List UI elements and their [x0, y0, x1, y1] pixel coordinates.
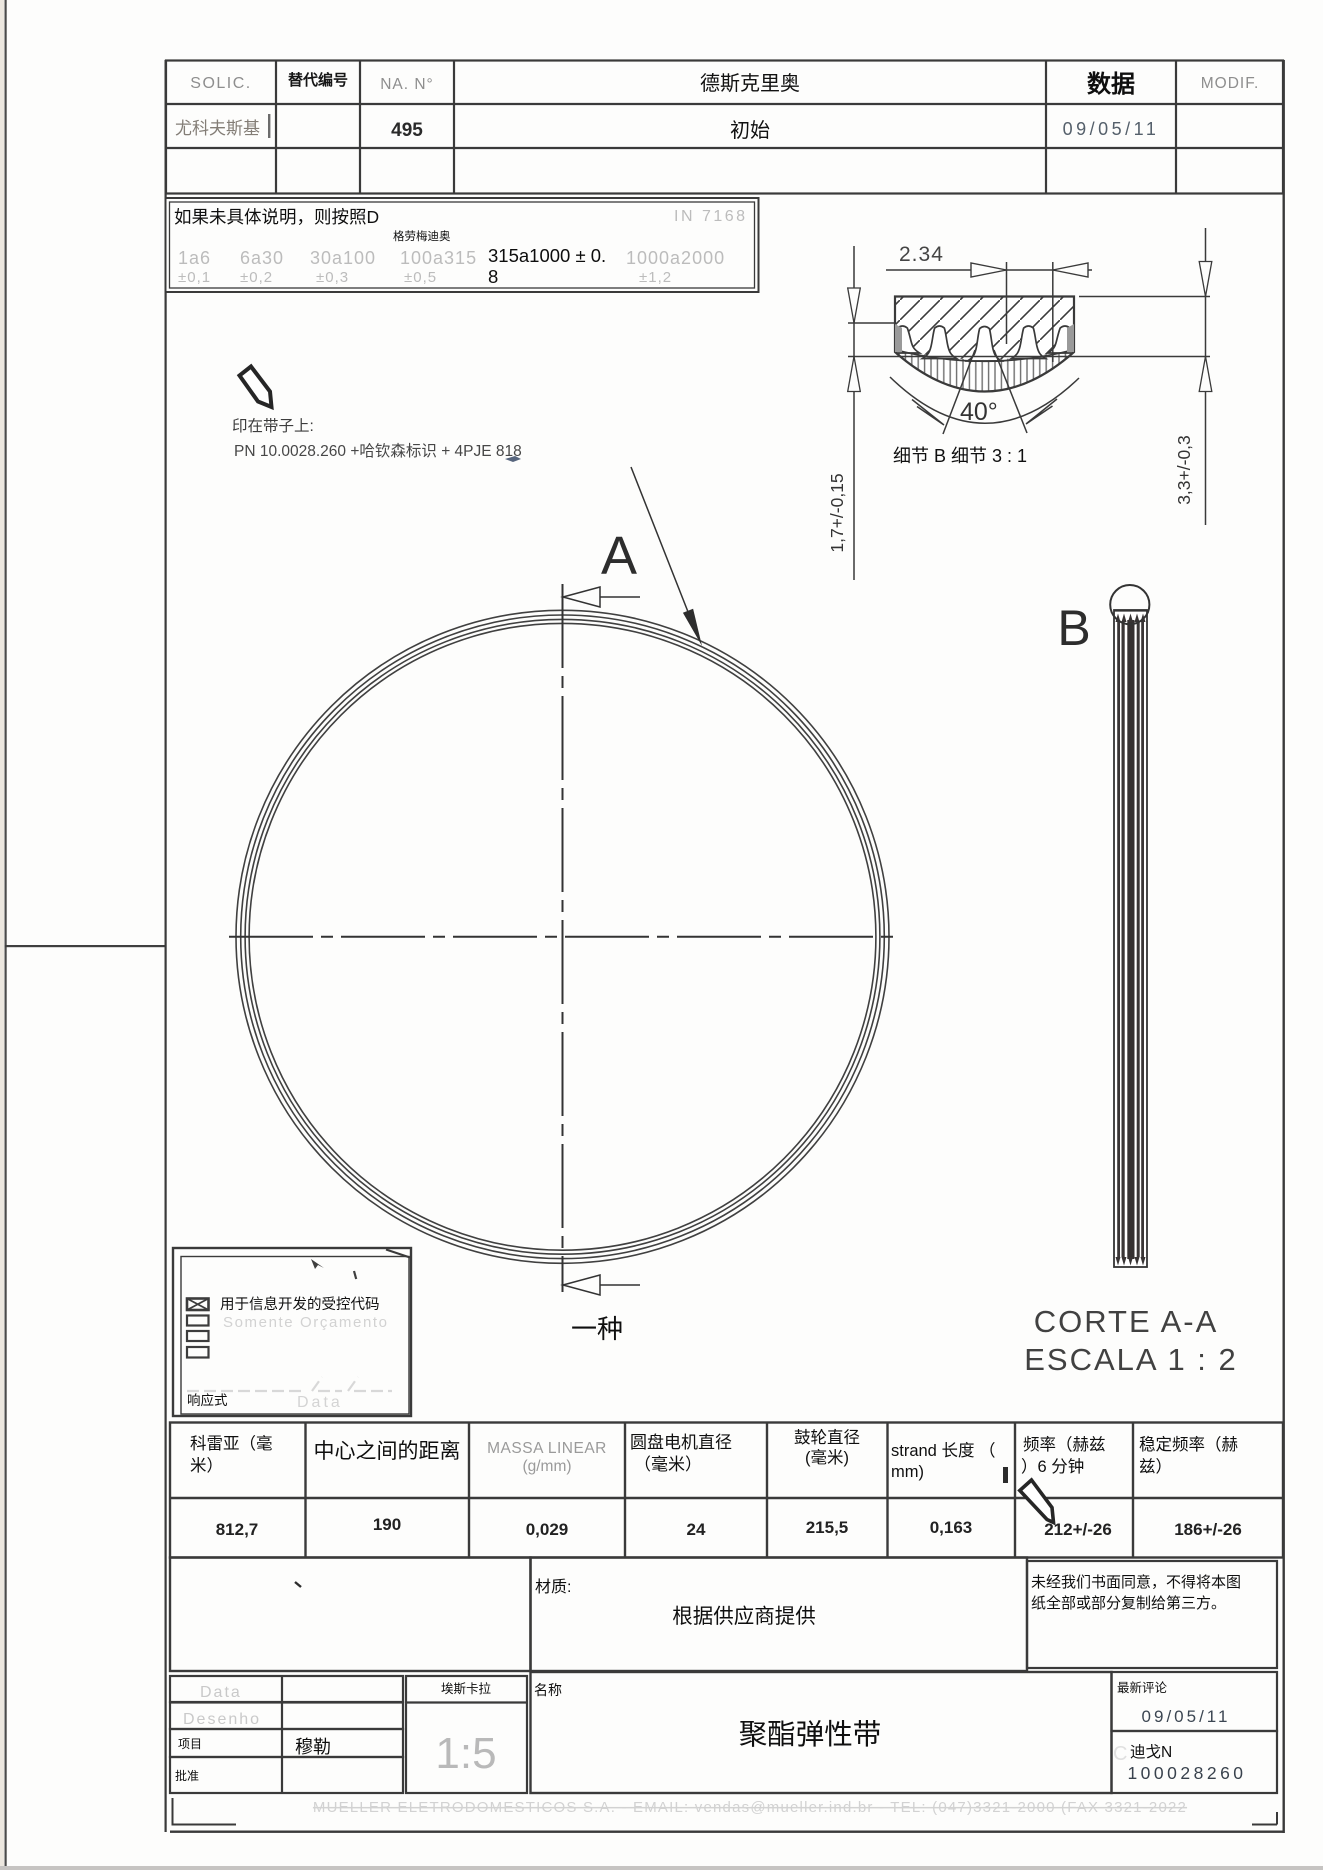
svg-text:3,3+/-0,3: 3,3+/-0,3	[1174, 435, 1194, 505]
svg-text:0,163: 0,163	[930, 1518, 973, 1537]
svg-text:09/05/11: 09/05/11	[1063, 119, 1160, 139]
svg-text:稳定频率（赫: 稳定频率（赫	[1139, 1435, 1238, 1454]
svg-text:812,7: 812,7	[216, 1520, 259, 1539]
svg-text:495: 495	[391, 120, 423, 141]
svg-text:±1,2: ±1,2	[639, 269, 672, 286]
svg-text:±0,1: ±0,1	[178, 269, 211, 286]
svg-text:NA. N°: NA. N°	[380, 76, 434, 93]
svg-text:6a30: 6a30	[240, 248, 284, 268]
svg-text:根据供应商提供: 根据供应商提供	[672, 1605, 816, 1628]
svg-text:100028260: 100028260	[1127, 1763, 1246, 1783]
svg-text:未经我们书面同意，不得将本图: 未经我们书面同意，不得将本图	[1031, 1573, 1241, 1591]
svg-text:如果未具体说明，则按照D: 如果未具体说明，则按照D	[174, 207, 379, 227]
svg-text:频率（赫兹: 频率（赫兹	[1023, 1435, 1106, 1454]
svg-text:186+/-26: 186+/-26	[1174, 1520, 1242, 1539]
svg-text:8: 8	[488, 266, 498, 287]
svg-text:尤科夫斯基: 尤科夫斯基	[175, 119, 260, 138]
svg-text:Data: Data	[297, 1394, 343, 1411]
svg-text:纸全部或部分复制给第三方。: 纸全部或部分复制给第三方。	[1031, 1594, 1226, 1612]
svg-text:替代编号: 替代编号	[288, 71, 348, 89]
svg-text:圆盘电机直径: 圆盘电机直径	[630, 1433, 732, 1452]
svg-text:材质:: 材质:	[535, 1578, 571, 1596]
svg-text:strand 长度 （: strand 长度 （	[891, 1441, 996, 1460]
svg-text:批准: 批准	[175, 1768, 199, 1783]
svg-text:兹）: 兹）	[1139, 1457, 1172, 1476]
svg-text:(毫米): (毫米)	[805, 1448, 849, 1467]
svg-text:MODIF.: MODIF.	[1201, 75, 1260, 92]
svg-text:CORTE A-A: CORTE A-A	[1034, 1304, 1219, 1339]
svg-text:(g/mm): (g/mm)	[522, 1458, 571, 1475]
svg-text:迪戈N: 迪戈N	[1130, 1743, 1172, 1761]
svg-text:细节 B 细节 3 : 1: 细节 B 细节 3 : 1	[893, 446, 1027, 466]
svg-text:PN 10.0028.260 +哈钦森标识 + 4PJE 8: PN 10.0028.260 +哈钦森标识 + 4PJE 818	[234, 442, 522, 460]
svg-text:（毫米）: （毫米）	[634, 1455, 702, 1474]
svg-text:印在带子上:: 印在带子上:	[232, 417, 314, 435]
svg-text:B: B	[1057, 600, 1090, 656]
svg-text:1000a2000: 1000a2000	[626, 248, 725, 268]
svg-text:SOLIC.: SOLIC.	[190, 75, 251, 92]
svg-text:±0,3: ±0,3	[316, 269, 349, 286]
svg-text:最新评论: 最新评论	[1117, 1680, 1168, 1695]
svg-text:米）: 米）	[190, 1456, 223, 1475]
svg-text:30a100: 30a100	[310, 248, 376, 268]
svg-text:科雷亚（毫: 科雷亚（毫	[190, 1434, 273, 1453]
svg-text:德斯克里奥: 德斯克里奥	[700, 72, 800, 95]
svg-text:C: C	[1113, 1743, 1127, 1765]
svg-text:穆勒: 穆勒	[295, 1737, 331, 1757]
svg-text:MUELLER ELETRODOMESTICOS S.A.: MUELLER ELETRODOMESTICOS S.A. - EMAIL: v…	[313, 1799, 1187, 1816]
svg-text:IN 7168: IN 7168	[674, 208, 748, 225]
svg-text:用于信息开发的受控代码: 用于信息开发的受控代码	[220, 1296, 380, 1313]
svg-text:1,7+/-0,15: 1,7+/-0,15	[827, 473, 847, 552]
svg-text:100a315: 100a315	[400, 248, 477, 268]
svg-text:名称: 名称	[534, 1682, 562, 1698]
svg-text:1:5: 1:5	[435, 1729, 496, 1778]
svg-text:响应式: 响应式	[187, 1392, 228, 1408]
svg-text:中心之间的距离: 中心之间的距离	[314, 1440, 461, 1463]
svg-text:MASSA LINEAR: MASSA LINEAR	[487, 1440, 607, 1457]
svg-text:Somente Orçamento: Somente Orçamento	[223, 1314, 389, 1331]
svg-text:212+/-26: 212+/-26	[1044, 1520, 1112, 1539]
svg-text:1a6: 1a6	[178, 248, 211, 268]
svg-text:09/05/11: 09/05/11	[1142, 1707, 1231, 1726]
svg-text:格劳梅迪奥: 格劳梅迪奥	[393, 229, 451, 243]
svg-text:ESCALA 1 : 2: ESCALA 1 : 2	[1024, 1342, 1238, 1377]
svg-text:315a1000 ± 0.: 315a1000 ± 0.	[488, 245, 606, 266]
svg-text:40°: 40°	[960, 398, 998, 426]
svg-text:190: 190	[373, 1515, 401, 1534]
svg-text:2.34: 2.34	[899, 243, 944, 266]
svg-text:聚酯弹性带: 聚酯弹性带	[739, 1719, 882, 1751]
svg-text:±0,5: ±0,5	[404, 269, 437, 286]
svg-text:Desenho: Desenho	[183, 1711, 261, 1728]
svg-text:±0,2: ±0,2	[240, 269, 273, 286]
svg-text:Data: Data	[200, 1684, 242, 1701]
svg-text:24: 24	[687, 1520, 706, 1539]
svg-text:埃斯卡拉: 埃斯卡拉	[441, 1681, 492, 1696]
svg-text:初始: 初始	[730, 119, 770, 142]
svg-text:数据: 数据	[1087, 71, 1135, 98]
svg-text:mm): mm)	[891, 1463, 924, 1481]
svg-text:）6 分钟: ）6 分钟	[1021, 1457, 1084, 1476]
svg-text:0,029: 0,029	[526, 1520, 569, 1539]
svg-text:项目: 项目	[178, 1737, 202, 1751]
svg-text:215,5: 215,5	[806, 1518, 849, 1537]
svg-text:A: A	[601, 526, 637, 586]
svg-text:一种: 一种	[571, 1314, 623, 1344]
svg-text:鼓轮直径: 鼓轮直径	[794, 1428, 860, 1447]
